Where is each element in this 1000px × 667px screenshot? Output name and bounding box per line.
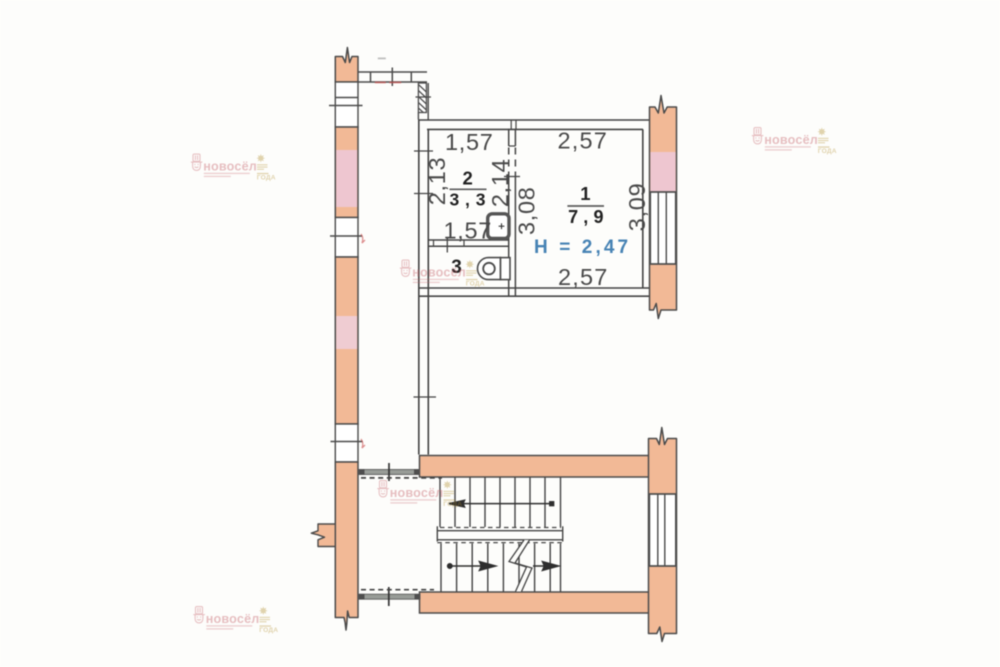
svg-text:3,08: 3,08 (514, 186, 540, 235)
svg-text:3,3: 3,3 (450, 190, 492, 210)
svg-text:1: 1 (580, 183, 590, 204)
svg-text:2,57: 2,57 (558, 128, 609, 154)
svg-text:1,57: 1,57 (445, 129, 494, 155)
svg-text:2,57: 2,57 (558, 264, 609, 290)
svg-text:H = 2,47: H = 2,47 (534, 237, 631, 258)
svg-text:2: 2 (463, 167, 473, 188)
svg-text:1,57: 1,57 (444, 218, 493, 244)
svg-text:3,09: 3,09 (624, 183, 650, 232)
svg-text:2,13: 2,13 (424, 157, 450, 206)
svg-text:7,9: 7,9 (568, 207, 609, 227)
